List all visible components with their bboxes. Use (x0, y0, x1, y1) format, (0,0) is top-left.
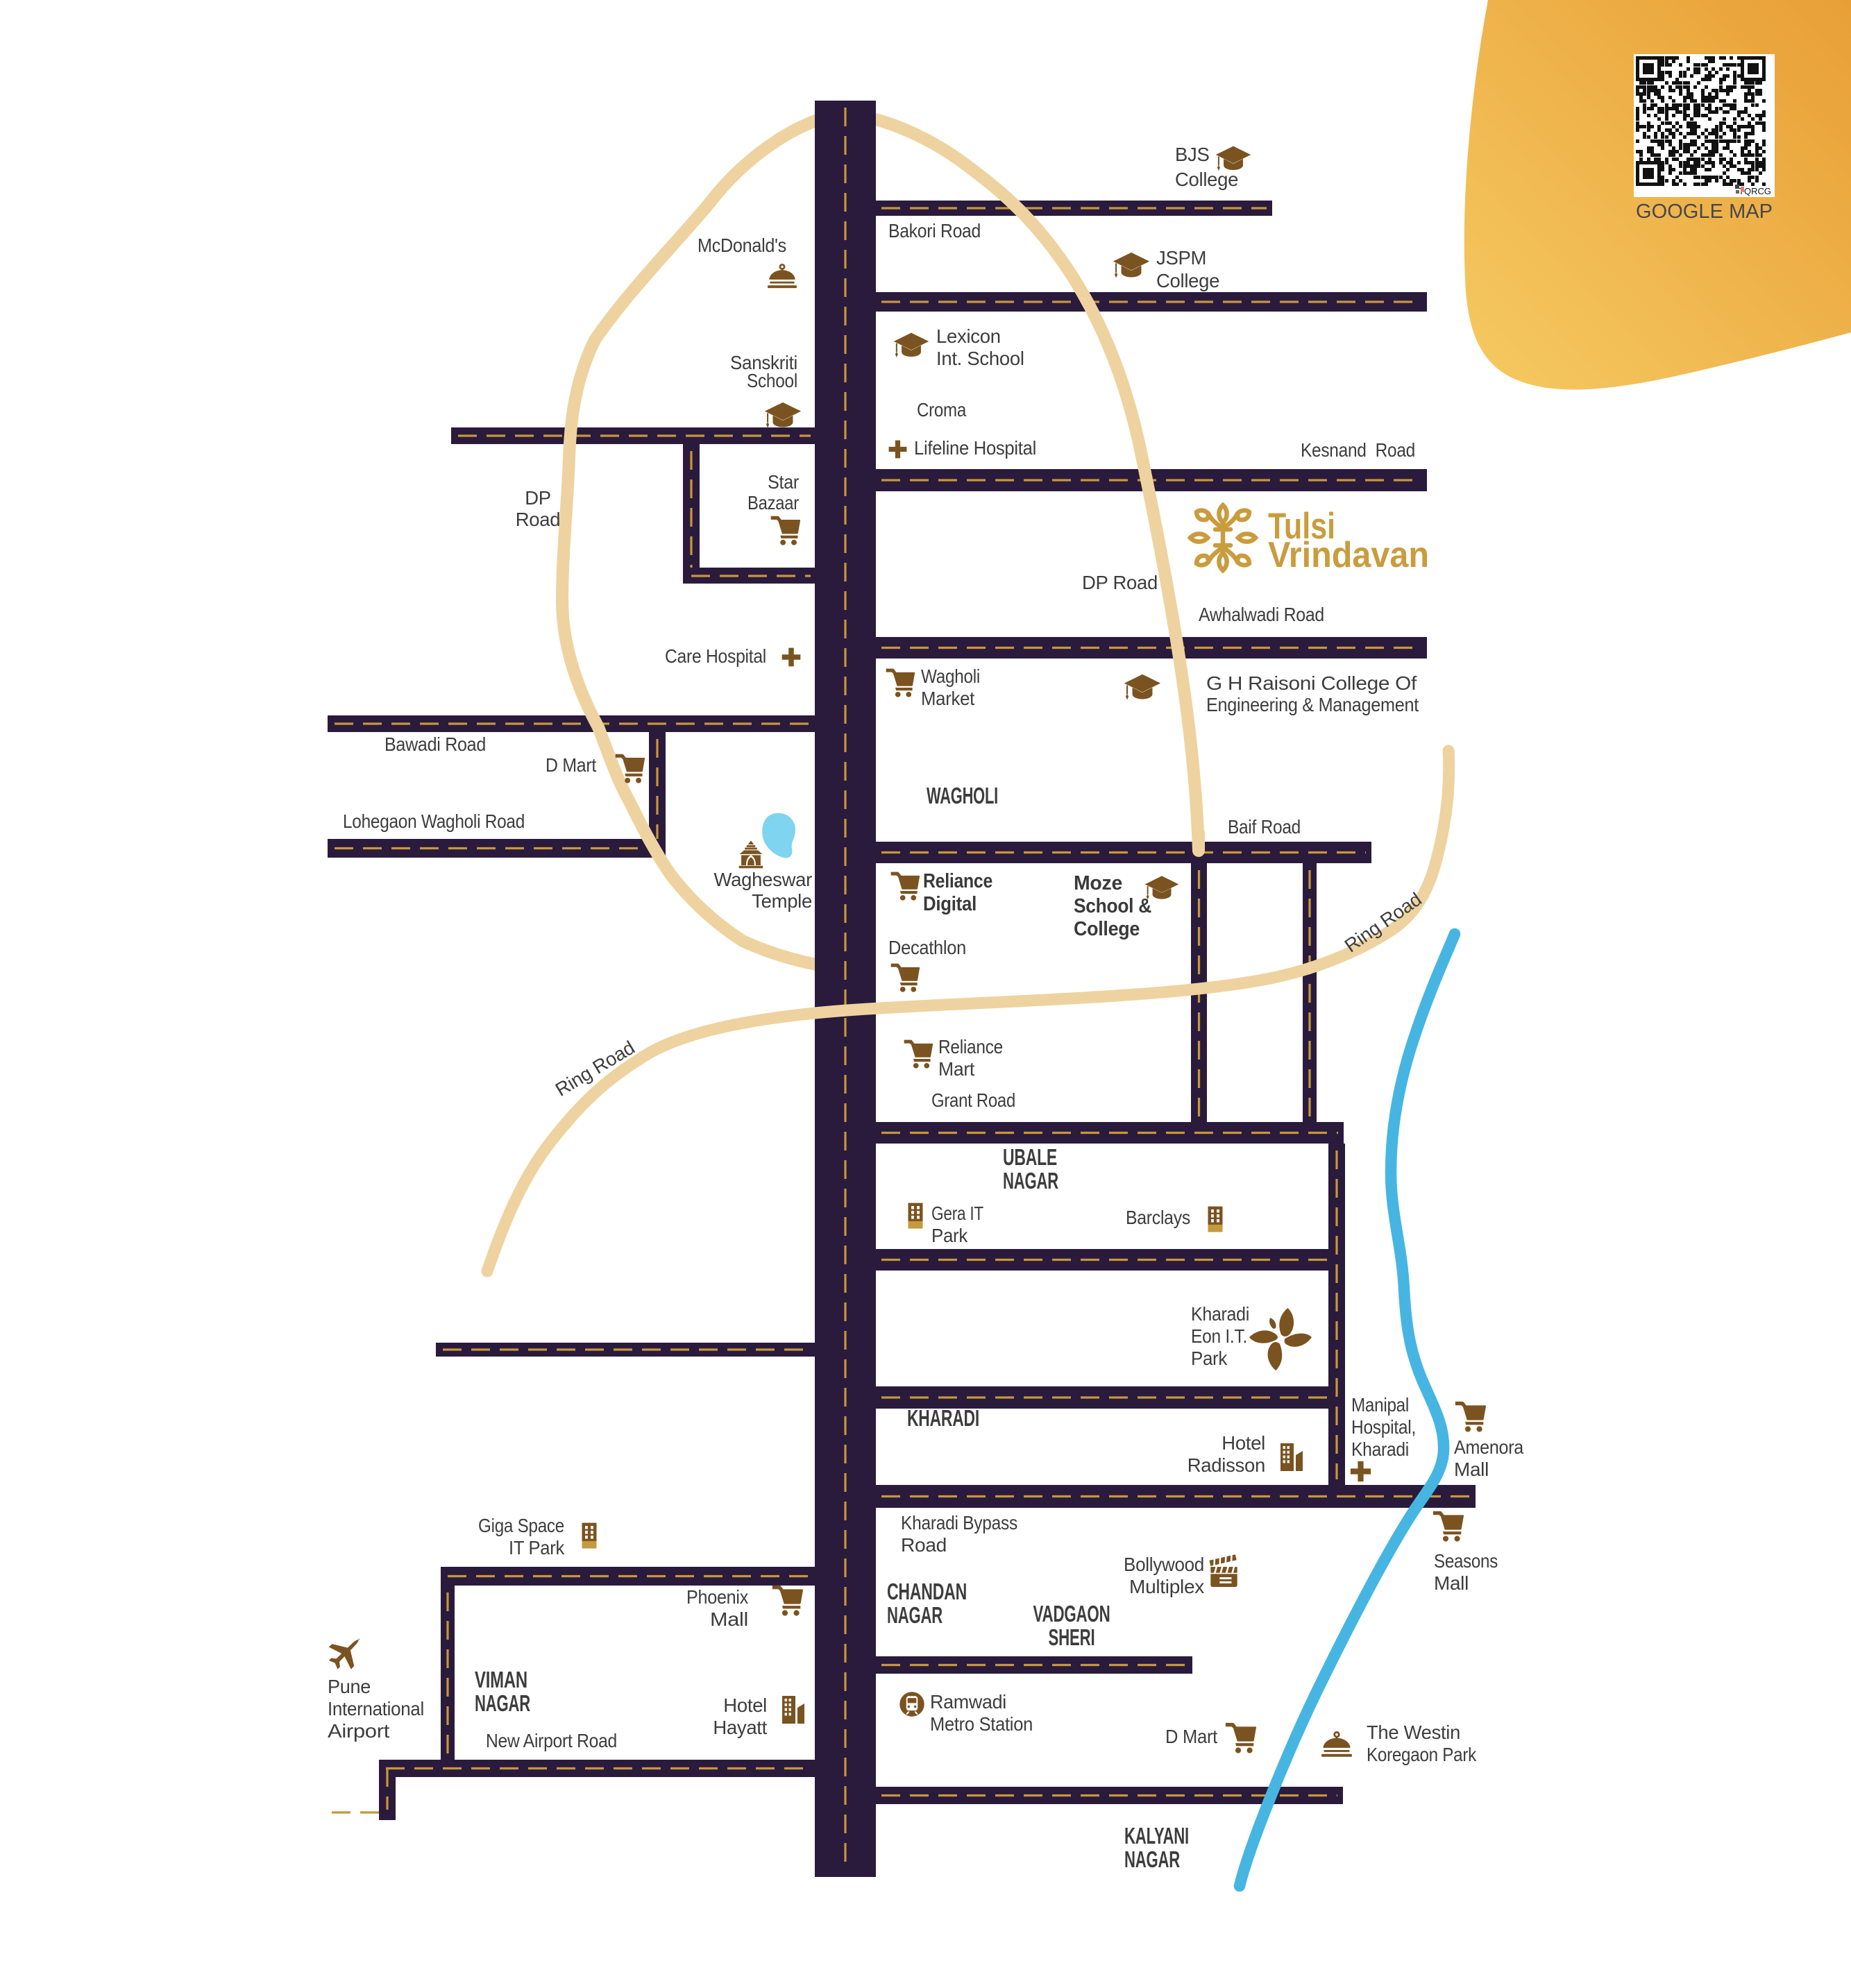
svg-text:D Mart: D Mart (546, 754, 597, 776)
svg-text:KHARADI: KHARADI (907, 1405, 979, 1431)
svg-text:UBALENAGAR: UBALENAGAR (1003, 1144, 1058, 1193)
svg-text:Baif Road: Baif Road (1228, 816, 1301, 838)
svg-text:Lifeline Hospital: Lifeline Hospital (914, 437, 1036, 459)
svg-text:WagholiMarket: WagholiMarket (921, 665, 980, 709)
svg-text:KALYANINAGAR: KALYANINAGAR (1124, 1823, 1189, 1872)
svg-text:Decathlon: Decathlon (888, 937, 966, 958)
svg-text:DP Road: DP Road (1082, 572, 1158, 593)
svg-text:BollywoodMultiplex: BollywoodMultiplex (1124, 1554, 1205, 1597)
svg-text:The WestinKoregaon Park: The WestinKoregaon Park (1367, 1722, 1476, 1765)
svg-text:G H Raisoni College OfEngineer: G H Raisoni College OfEngineering & Mana… (1206, 672, 1419, 715)
svg-text:Care Hospital: Care Hospital (665, 645, 766, 667)
svg-text:VIMANNAGAR: VIMANNAGAR (475, 1667, 530, 1716)
svg-text:Barclays: Barclays (1126, 1207, 1190, 1228)
svg-text:Bawadi Road: Bawadi Road (384, 733, 486, 755)
svg-text:Lohegaon Wagholi Road: Lohegaon Wagholi Road (343, 810, 525, 832)
svg-text:Croma: Croma (917, 399, 967, 420)
svg-text:Bakori Road: Bakori Road (888, 220, 981, 241)
svg-text:Vrindavan: Vrindavan (1268, 535, 1429, 575)
svg-text:McDonald's: McDonald's (698, 235, 786, 256)
svg-text:Awhalwadi Road: Awhalwadi Road (1199, 604, 1324, 625)
svg-text:ManipalHospital,Kharadi: ManipalHospital,Kharadi (1351, 1394, 1416, 1460)
svg-text:Kesnand Road: Kesnand Road (1301, 439, 1415, 461)
svg-text:WAGHOLI: WAGHOLI (927, 783, 998, 808)
svg-text:Grant Road: Grant Road (931, 1089, 1015, 1111)
svg-text:New Airport Road: New Airport Road (486, 1730, 617, 1751)
svg-text:GOOGLE MAP: GOOGLE MAP (1636, 201, 1774, 223)
svg-text:D Mart: D Mart (1165, 1726, 1218, 1747)
